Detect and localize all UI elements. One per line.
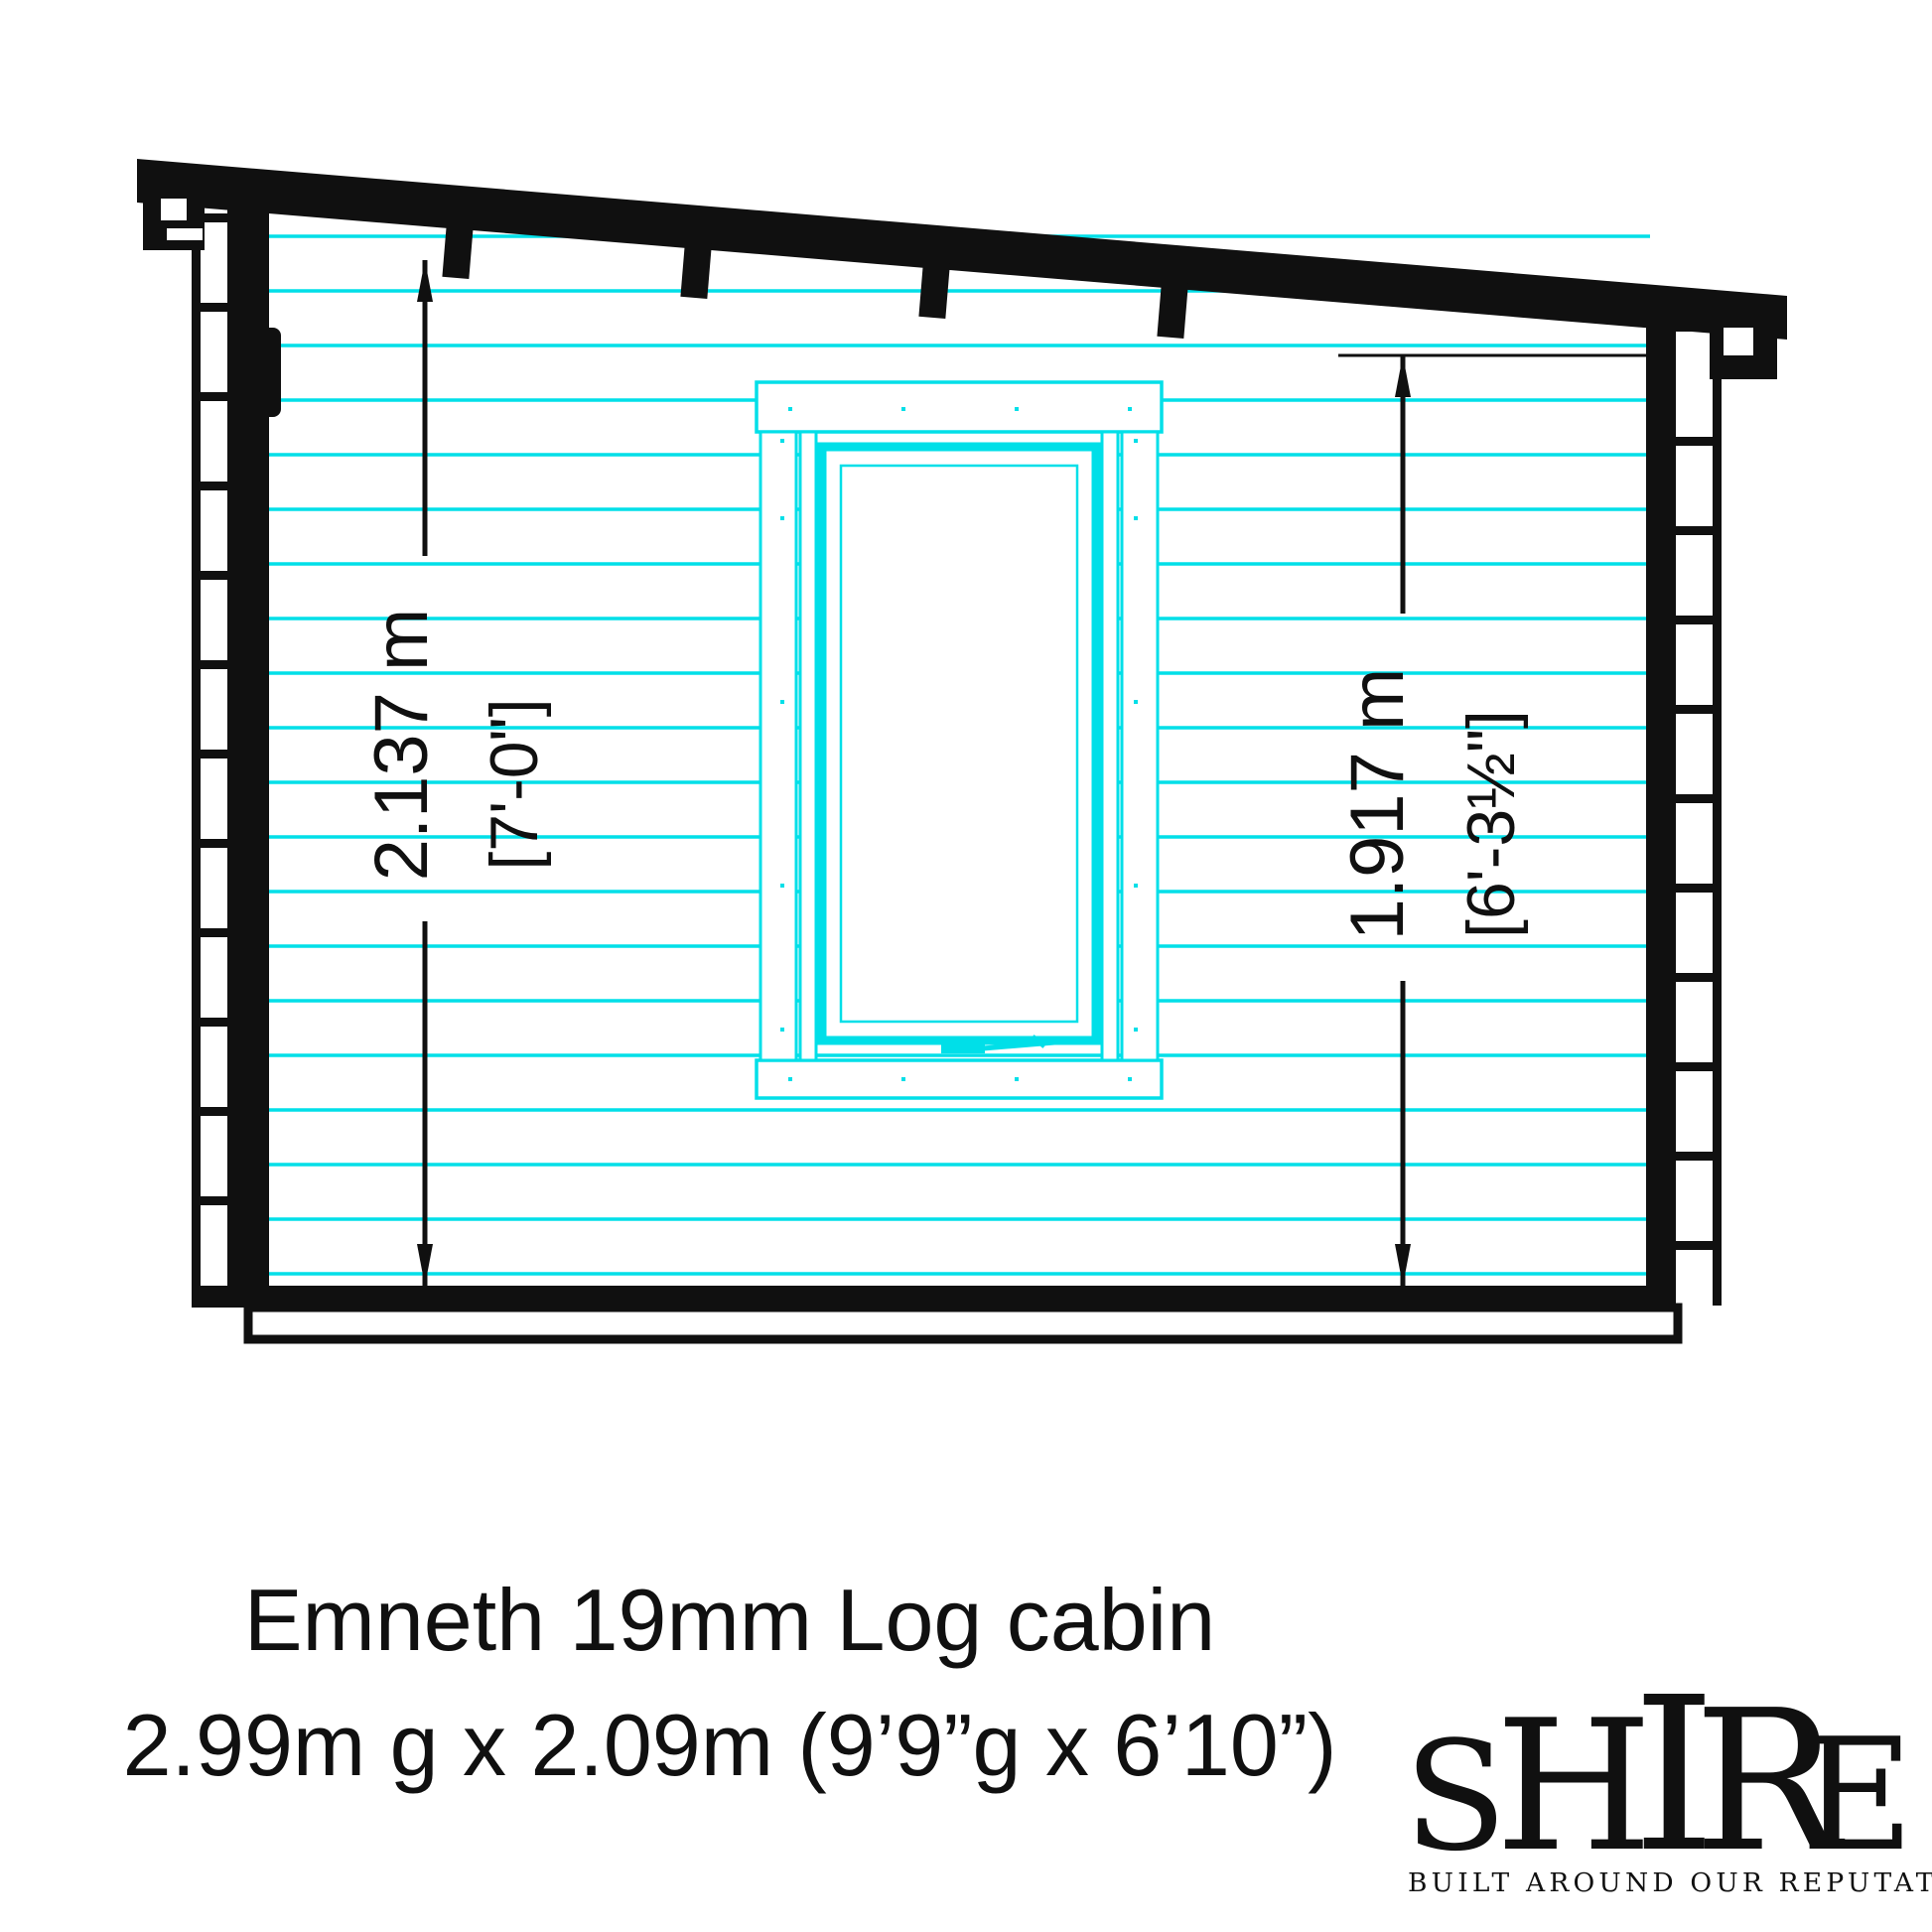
caption: Emneth 19mm Log cabin 2.99m g x 2.09m (9… (123, 1571, 1337, 1794)
dimension-right: 1.917 m [6'-3½"] (1335, 355, 1660, 1286)
shire-logo: S H I R E BUILT AROUND OUR REPUTATION (1404, 1652, 1932, 1899)
logo-letter-s: S (1404, 1709, 1507, 1884)
window-left-board (760, 432, 796, 1060)
window-header-board (757, 382, 1162, 432)
window-sill-board (757, 1060, 1162, 1098)
dim-right-imperial: [6'-3½"] (1453, 710, 1529, 938)
left-fascia (143, 169, 205, 250)
dim-right-metric: 1.917 m (1335, 668, 1420, 941)
logo-tagline: BUILT AROUND OUR REPUTATION (1408, 1867, 1932, 1898)
caption-line1: Emneth 19mm Log cabin (244, 1571, 1215, 1669)
base-bearer (248, 1308, 1678, 1339)
elevation-drawing: 2.137 m [7'-0"] 1.917 m [6'-3½"] Emneth … (0, 0, 1932, 1932)
window-right-board (1122, 432, 1158, 1060)
dimension-left: 2.137 m [7'-0"] (359, 260, 552, 1286)
window (757, 382, 1162, 1098)
roof-clip (442, 221, 474, 279)
logo-letter-h: H (1495, 1681, 1653, 1891)
right-corner-trim (1646, 328, 1676, 1306)
caption-line2: 2.99m g x 2.09m (9’9”g x 6’10”) (123, 1696, 1337, 1794)
right-wall-log-ends (1646, 323, 1722, 1306)
dim-left-imperial: [7'-0"] (477, 698, 552, 870)
window-right-strip (1102, 432, 1118, 1060)
roof-clip (1157, 281, 1188, 339)
left-wall-log-ends (192, 171, 281, 1306)
roof-clip (680, 241, 712, 299)
window-left-strip (800, 432, 816, 1060)
dim-left-metric: 2.137 m (359, 609, 444, 882)
page: 2.137 m [7'-0"] 1.917 m [6'-3½"] Emneth … (0, 0, 1932, 1932)
right-fascia (1710, 306, 1777, 379)
logo-letter-e: E (1801, 1705, 1914, 1885)
window-glass (841, 466, 1077, 1022)
roof-clip (918, 261, 950, 319)
